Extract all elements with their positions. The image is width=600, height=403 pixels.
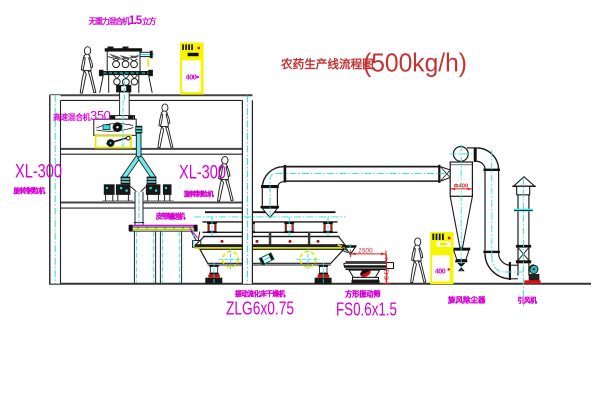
svg-text:皮带输送机: 皮带输送机 [155,211,186,220]
svg-text:方形振动筛: 方形振动筛 [345,290,380,299]
svg-text:541: 541 [383,268,390,279]
svg-text:XL-300: XL-300 [15,162,62,183]
svg-text:400: 400 [435,269,446,276]
svg-text:旋风除尘器: 旋风除尘器 [447,296,486,305]
svg-text:XL-300: XL-300 [179,163,226,184]
svg-text:旋转制粒机: 旋转制粒机 [183,189,214,198]
svg-text:FS0.6x1.5: FS0.6x1.5 [336,300,397,320]
svg-text:引风机: 引风机 [518,296,538,305]
svg-text:400: 400 [186,73,197,82]
svg-text:(500kg/h): (500kg/h) [363,48,467,78]
svg-text:振动流化床干燥机: 振动流化床干燥机 [235,289,286,298]
svg-text:无重力混合机1.5 立方: 无重力混合机1.5 立方 [88,15,157,27]
svg-text:旋转制粒机: 旋转制粒机 [13,186,46,195]
svg-text:ZLG6x0.75: ZLG6x0.75 [226,299,294,319]
svg-text:农药生产线流程图: 农药生产线流程图 [280,57,374,71]
svg-text:1500: 1500 [358,248,373,255]
